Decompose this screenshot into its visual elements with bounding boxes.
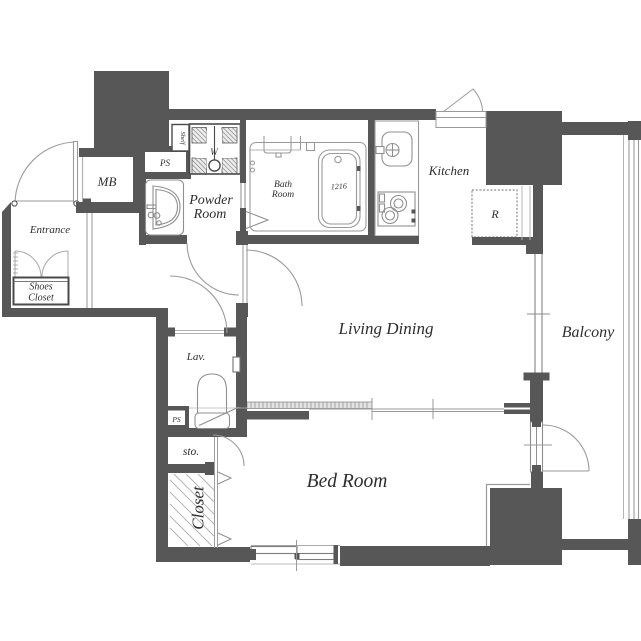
svg-text:PS: PS: [159, 158, 170, 168]
svg-text:Closet: Closet: [28, 293, 54, 304]
svg-text:Room: Room: [271, 190, 294, 200]
svg-text:MB: MB: [97, 174, 117, 189]
svg-text:Entrance: Entrance: [29, 224, 70, 236]
svg-text:Bed Room: Bed Room: [307, 471, 388, 492]
svg-text:Room: Room: [193, 207, 227, 222]
svg-text:sto.: sto.: [183, 446, 199, 458]
svg-text:Shoes: Shoes: [29, 282, 52, 293]
svg-text:Balcony: Balcony: [562, 324, 615, 341]
svg-text:Lav.: Lav.: [186, 351, 205, 363]
svg-text:Living Dining: Living Dining: [338, 319, 434, 338]
svg-text:Kitchen: Kitchen: [428, 163, 469, 178]
svg-text:Closet: Closet: [189, 485, 208, 530]
svg-text:Powder: Powder: [188, 193, 233, 208]
svg-text:PS: PS: [171, 415, 181, 424]
svg-text:Bath: Bath: [274, 180, 292, 190]
svg-text:Shelf: Shelf: [179, 132, 186, 146]
svg-text:1216: 1216: [331, 181, 348, 191]
svg-text:R: R: [490, 207, 499, 221]
